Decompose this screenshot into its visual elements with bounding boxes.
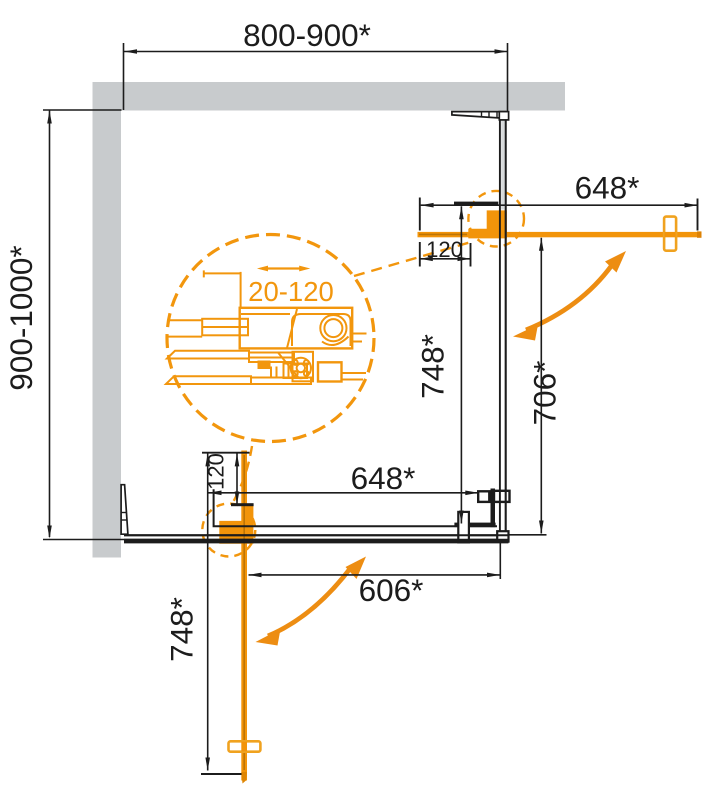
- svg-text:800-900*: 800-900*: [243, 17, 371, 53]
- svg-text:900-1000*: 900-1000*: [3, 245, 39, 390]
- svg-text:120: 120: [204, 453, 229, 490]
- svg-text:748*: 748*: [415, 334, 451, 399]
- svg-text:706*: 706*: [527, 361, 563, 426]
- svg-text:606*: 606*: [359, 572, 424, 608]
- svg-text:20-120: 20-120: [248, 276, 334, 307]
- svg-text:648*: 648*: [575, 170, 640, 206]
- svg-text:648*: 648*: [351, 460, 416, 496]
- svg-text:120: 120: [426, 237, 463, 262]
- svg-text:748*: 748*: [164, 597, 200, 662]
